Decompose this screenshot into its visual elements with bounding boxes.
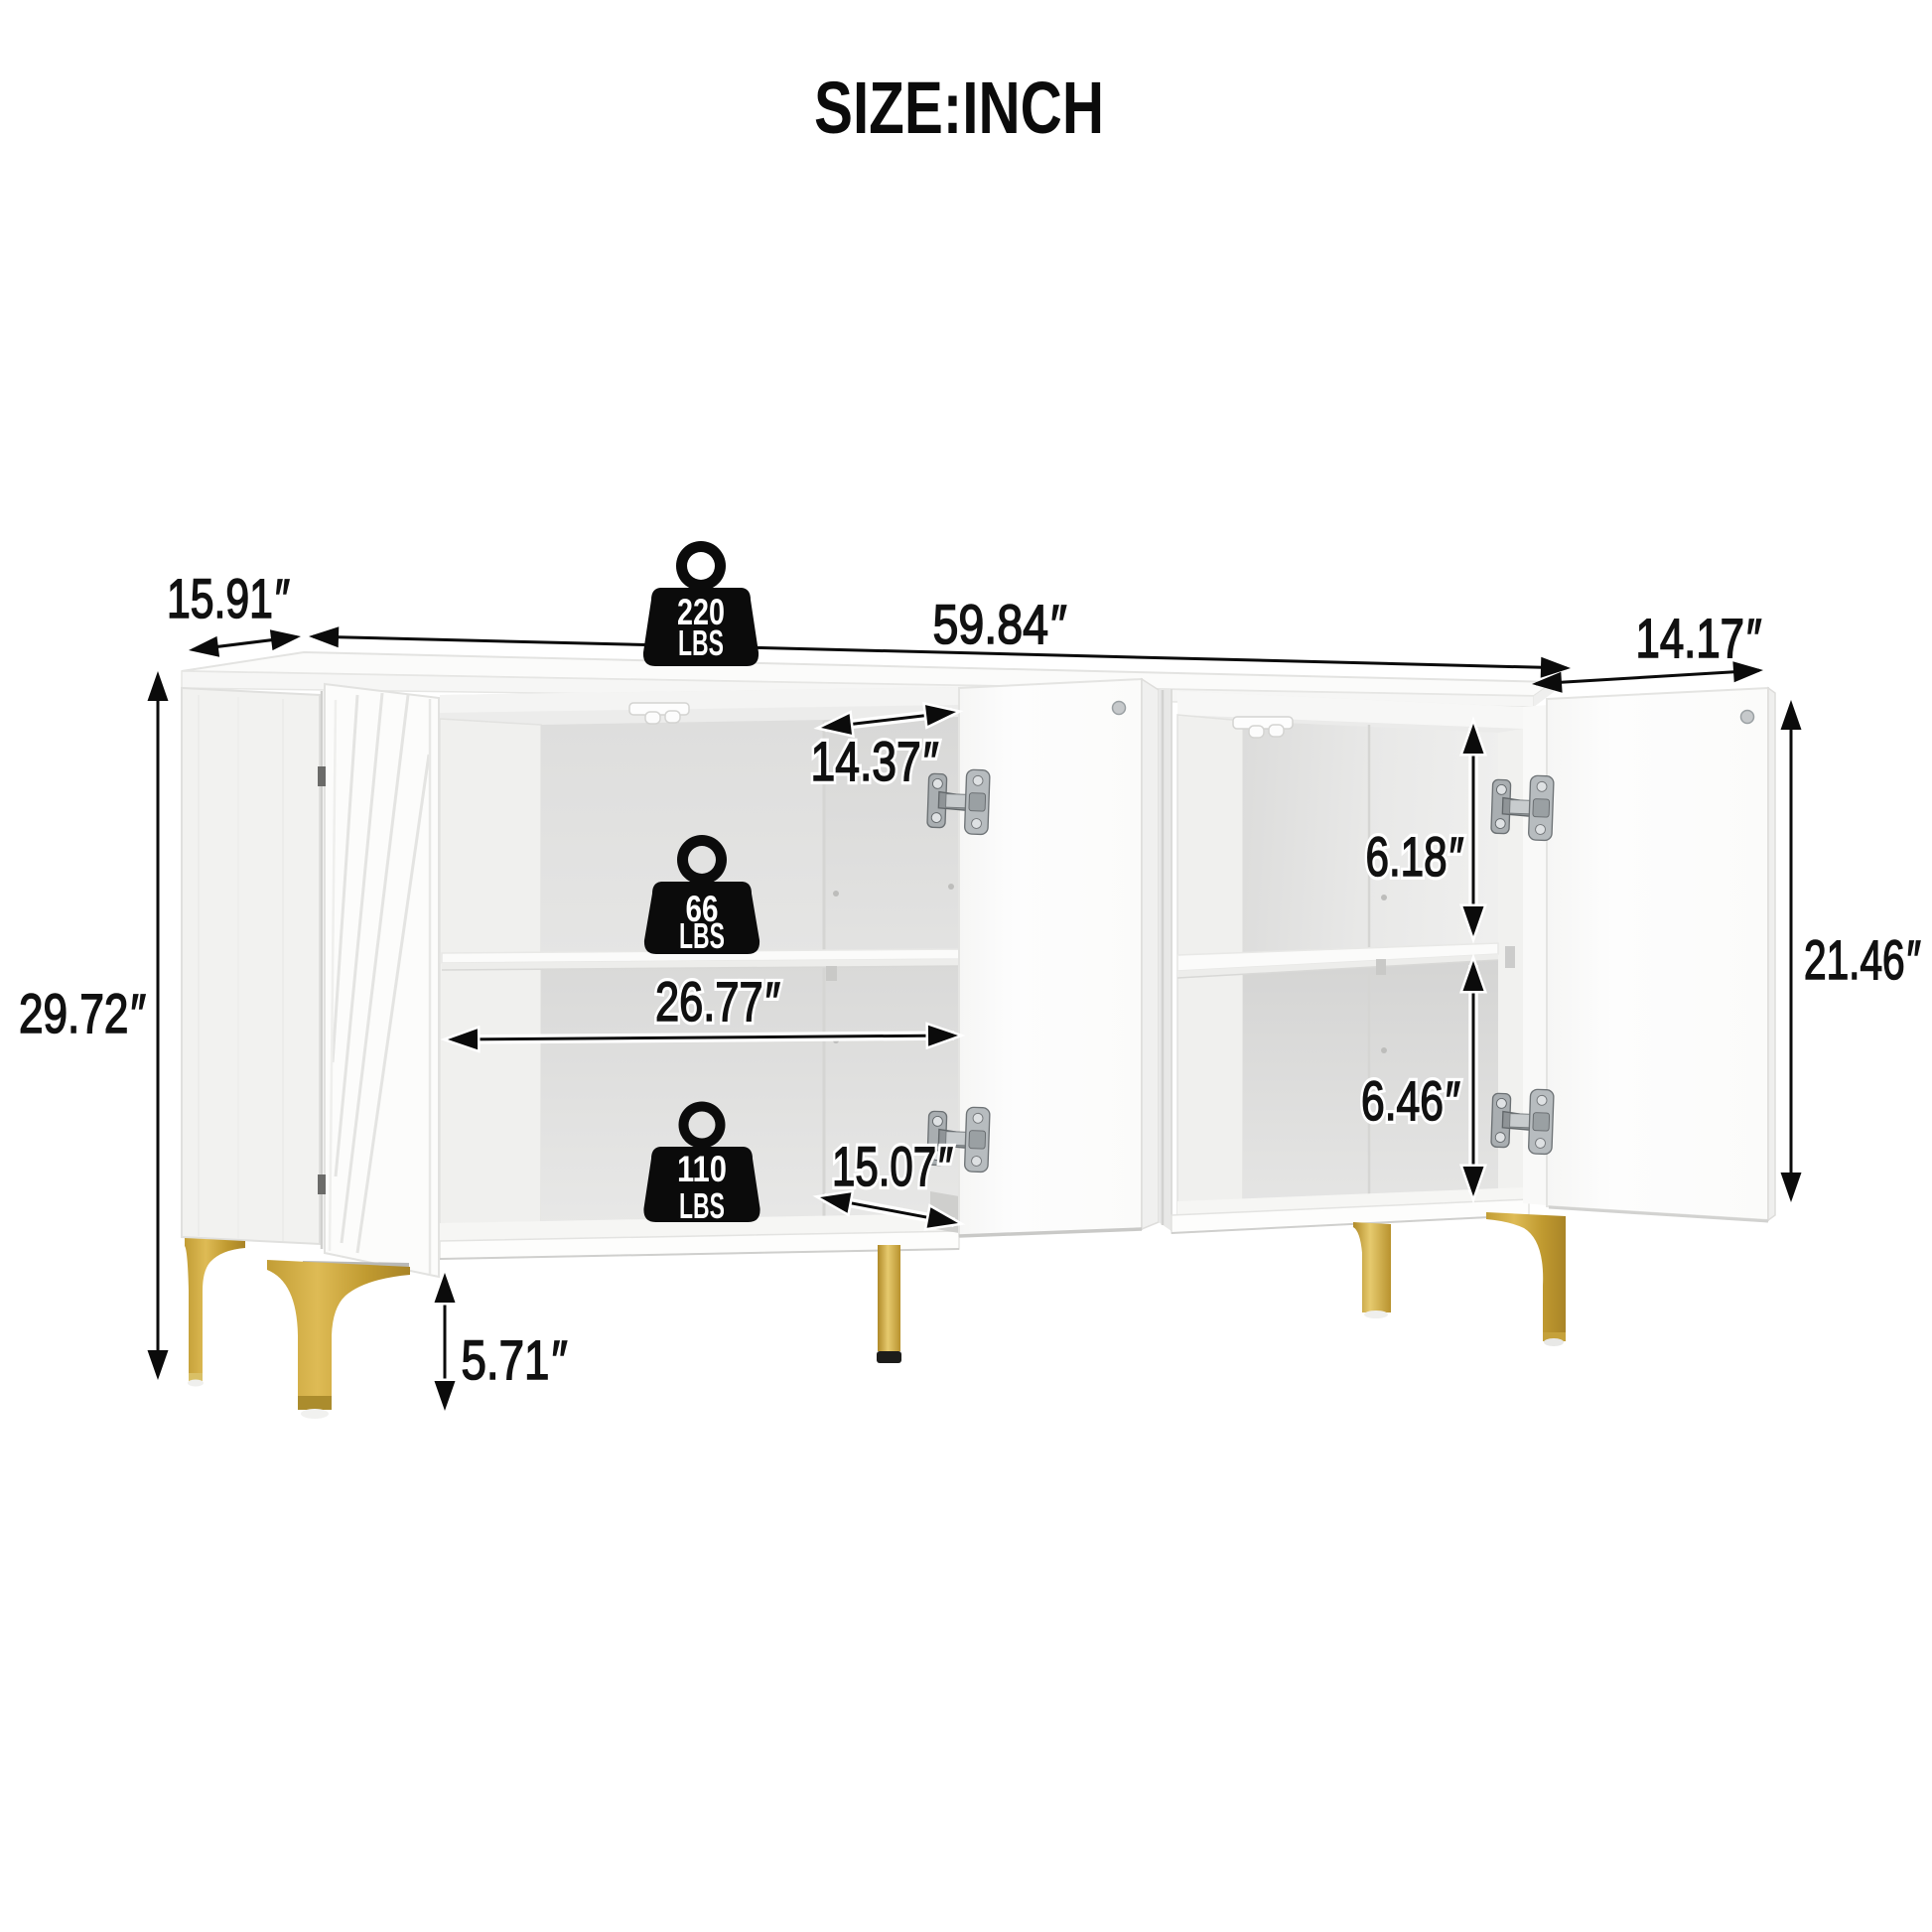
svg-text:5.71″: 5.71″ <box>462 1328 568 1391</box>
svg-text:LBS: LBS <box>679 1185 725 1226</box>
svg-text:14.37″: 14.37″ <box>811 730 939 792</box>
svg-text:6.18″: 6.18″ <box>1366 825 1464 888</box>
svg-text:14.17″: 14.17″ <box>1636 607 1762 669</box>
svg-text:SIZE:INCH: SIZE:INCH <box>814 67 1104 149</box>
svg-text:LBS: LBS <box>678 622 724 663</box>
svg-text:29.72″: 29.72″ <box>19 982 146 1044</box>
svg-text:6.46″: 6.46″ <box>1361 1069 1460 1132</box>
svg-text:26.77″: 26.77″ <box>655 970 780 1033</box>
svg-text:21.46″: 21.46″ <box>1804 928 1921 991</box>
svg-text:59.84″: 59.84″ <box>933 593 1067 655</box>
svg-text:15.91″: 15.91″ <box>167 567 290 629</box>
svg-text:15.07″: 15.07″ <box>832 1135 953 1197</box>
svg-text:110: 110 <box>677 1149 727 1189</box>
svg-text:LBS: LBS <box>679 915 725 956</box>
